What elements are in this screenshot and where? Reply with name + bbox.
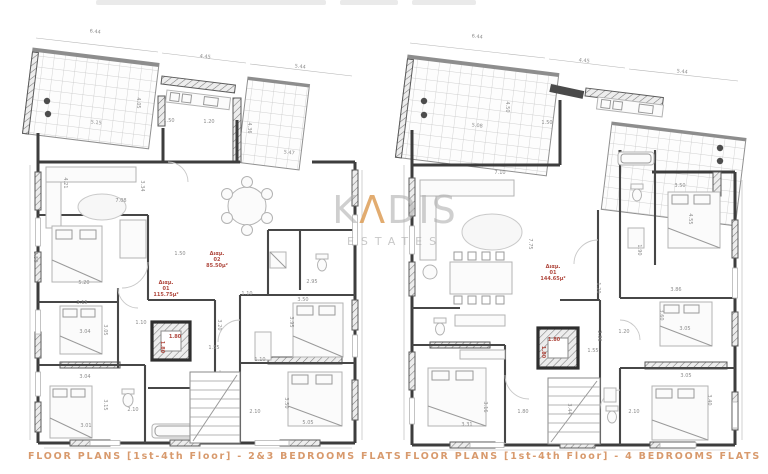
dimension-label: 5.05: [302, 420, 313, 426]
dimension-label: 3.15: [102, 399, 108, 410]
dimension-label: 3.34: [139, 180, 145, 191]
bed: [668, 192, 720, 248]
dining-table: [222, 177, 273, 236]
apartment-area-label: 1.80: [169, 334, 182, 340]
wardrobe: [460, 350, 505, 359]
dimension-label: 2.86: [596, 330, 602, 341]
dimension-label: 3.04: [79, 329, 90, 335]
dimension-label: 3.60: [658, 309, 664, 320]
dimension-label: 1.10: [135, 320, 146, 326]
dimension-label: 1.10: [241, 291, 252, 297]
dimension-label: 4.55: [687, 213, 693, 224]
toilet: [631, 184, 643, 201]
dimension-label: 1.50: [174, 251, 185, 257]
dimension-label: 1.55: [587, 348, 598, 354]
column-dot: [421, 98, 427, 104]
dimension-label: 4.45: [199, 53, 211, 60]
column-dot: [421, 112, 427, 118]
apartment-area-label: 1.80: [540, 346, 546, 359]
sink: [604, 388, 616, 402]
dimension-label: 2.10: [127, 407, 138, 413]
dimension-label: 1.80: [517, 409, 528, 415]
dimension-label: 2.10: [249, 409, 260, 415]
apartment-area-label: 144.65μ²: [540, 276, 565, 282]
column-dot: [717, 158, 723, 164]
dimension-label: 3.04: [79, 374, 90, 380]
bed: [288, 372, 342, 426]
bed: [660, 302, 712, 346]
dimension-label: 7.08: [115, 198, 126, 204]
dimension-label: 5.50: [32, 251, 38, 262]
stairs: [190, 372, 240, 443]
elevator: [152, 322, 190, 360]
dimension-label: 2.10: [628, 409, 639, 415]
dimension-label: 3.44: [566, 403, 572, 414]
toilet: [316, 254, 328, 271]
column-dot: [45, 111, 51, 117]
dimension-label: 3.50: [297, 297, 308, 303]
dimension-label: 1.20: [618, 329, 629, 335]
dimension-label: 3.01: [80, 423, 91, 429]
toilet: [606, 406, 618, 423]
dimension-label: 1.10: [254, 357, 265, 363]
stairs: [548, 378, 600, 444]
dimension-label: 4.05: [135, 97, 141, 108]
bathtub: [618, 152, 654, 165]
bed: [652, 386, 708, 440]
caption-left-plan: FLOOR PLANS [1st-4th Floor] - 2&3 BEDROO…: [28, 451, 378, 467]
dimension-label: 3.16: [482, 401, 488, 412]
dimension-label: 1.90: [636, 244, 642, 255]
dimension-label: 3.20: [216, 319, 222, 330]
dimension-label: 3.05: [679, 326, 690, 332]
dimension-label: 3.86: [670, 287, 681, 293]
dimension-label: 7.75: [527, 238, 533, 249]
dimension-label: 4.36: [246, 122, 252, 133]
floor-plans-drawing: 6.444.455.444.055.151.501.204.365.474.21…: [0, 0, 768, 474]
dimension-label: 7.10: [494, 170, 505, 176]
dimension-label: 3.95: [288, 316, 294, 327]
dimension-label: 5.20: [78, 280, 89, 286]
shower: [270, 252, 286, 268]
floor-plan-right: 6.444.455.445.084.501.507.107.753.504.55…: [395, 33, 746, 450]
dimension-label: 4.21: [62, 177, 68, 188]
toilet: [122, 389, 134, 407]
dining-table: [450, 252, 512, 304]
wardrobe: [120, 220, 146, 258]
dimension-label: 3.40: [706, 394, 712, 405]
bed: [50, 386, 92, 438]
dimension-label: 1.55: [208, 345, 219, 351]
kitchen: [549, 84, 663, 117]
column-dot: [44, 98, 50, 104]
dimension-label: 3.50: [283, 397, 289, 408]
dimension-label: 2.95: [306, 279, 317, 285]
toilet: [434, 318, 446, 335]
dimension-label: 3.05: [102, 324, 108, 335]
wardrobe: [255, 332, 271, 360]
bed: [52, 226, 102, 282]
dimension-label: 4.45: [578, 57, 590, 64]
floor-plan-left: 6.444.455.444.055.151.501.204.365.474.21…: [23, 28, 362, 448]
rug: [462, 214, 522, 250]
apartment-area-label: 1.80: [548, 337, 561, 343]
dimension-label: 1.50: [541, 120, 552, 126]
apartment-area-label: 85.50μ²: [206, 263, 228, 269]
apartment-area-label: 115.75μ²: [153, 292, 178, 298]
bed: [428, 368, 486, 426]
dimension-label: 1.20: [203, 119, 214, 125]
dimension-label: 6.44: [89, 28, 101, 35]
caption-right-plan: FLOOR PLANS [1st-4th Floor] - 4 BEDROOMS…: [405, 451, 755, 467]
apartment-area-label: 1.80: [159, 341, 165, 354]
bed: [293, 303, 343, 357]
dimension-label: 3.15: [76, 300, 87, 306]
dimension-label: 1.50: [163, 118, 174, 124]
terrace-grid: [395, 55, 558, 176]
column-dot: [717, 145, 723, 151]
dimension-label: 3.05: [680, 373, 691, 379]
dimension-label: 3.31: [461, 422, 472, 428]
dimension-label: 1.20: [595, 282, 601, 293]
dimension-label: 3.50: [674, 183, 685, 189]
dimension-label: 4.50: [504, 101, 510, 112]
wardrobe: [455, 315, 505, 326]
dimension-label: 6.44: [471, 33, 483, 40]
